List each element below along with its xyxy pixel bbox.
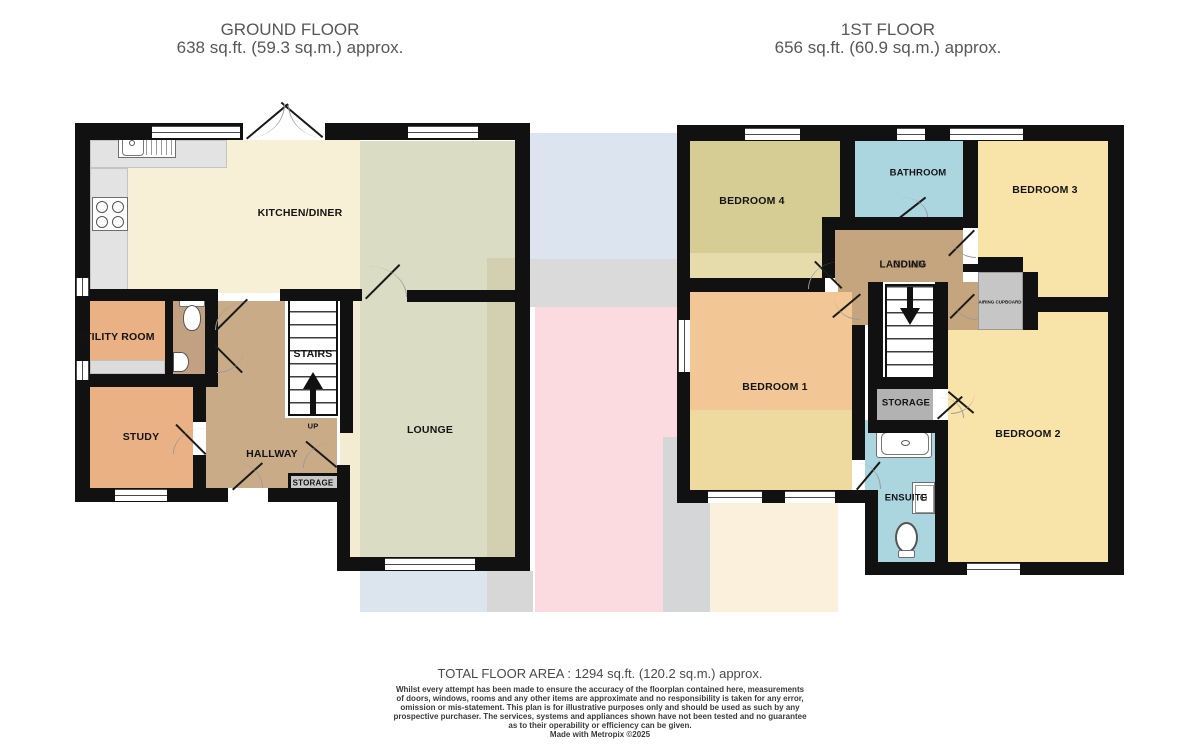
label-ground-storage: STORAGE — [293, 479, 334, 488]
label-first-storage: STORAGE — [882, 398, 930, 409]
window — [950, 128, 1023, 140]
bg-zone-cream — [710, 503, 838, 612]
wall — [193, 455, 206, 490]
stairs-down-arrow-icon — [907, 287, 913, 309]
bg-zone-blue — [527, 133, 677, 259]
label-utility-room: UTILITY ROOM — [77, 331, 154, 343]
window — [785, 491, 835, 503]
label-stairs: STAIRS — [294, 348, 333, 360]
ground-floor-title: GROUND FLOOR — [221, 20, 360, 40]
wall — [978, 257, 1023, 272]
label-ensuite: ENSUITE — [885, 493, 928, 504]
ensuite-toilet-icon — [895, 522, 918, 553]
kitchen-hob-icon — [92, 197, 128, 231]
wall — [868, 282, 883, 387]
bg-zone-pink — [535, 307, 677, 612]
first-floor-area: 656 sq.ft. (60.9 sq.m.) approx. — [775, 38, 1002, 58]
bedroom1-shade — [690, 410, 852, 490]
wall — [340, 289, 353, 433]
wall — [677, 125, 690, 490]
room-landing — [835, 230, 963, 282]
label-bedroom2: BEDROOM 2 — [995, 428, 1060, 440]
ground-floor-area: 638 sq.ft. (59.3 sq.m.) approx. — [177, 38, 404, 58]
label-hallway: HALLWAY — [246, 448, 298, 460]
window — [152, 126, 240, 138]
wall — [75, 289, 218, 301]
wall — [963, 141, 978, 228]
wall — [165, 289, 173, 380]
window — [76, 278, 89, 296]
wall — [677, 490, 870, 503]
wall — [677, 278, 825, 292]
wall — [963, 264, 978, 272]
wall — [337, 465, 350, 571]
window — [76, 361, 89, 380]
wall — [868, 377, 877, 433]
label-study: STUDY — [123, 431, 160, 443]
wall — [822, 217, 963, 230]
window — [708, 491, 762, 503]
wall — [1108, 125, 1124, 575]
window — [678, 320, 690, 372]
wall — [407, 290, 515, 302]
label-airing-cupboard: AIRING CUPBOARD — [978, 300, 1021, 305]
wall — [852, 325, 865, 460]
label-lounge: LOUNGE — [407, 424, 453, 436]
window — [745, 128, 800, 140]
window — [897, 128, 925, 140]
label-up: UP — [308, 422, 319, 431]
wall — [193, 387, 206, 422]
total-floor-area: TOTAL FLOOR AREA : 1294 sq.ft. (120.2 sq… — [438, 666, 763, 681]
first-floor-title: 1ST FLOOR — [841, 20, 935, 40]
utility-counter — [90, 360, 165, 374]
bg-zone-gray3 — [487, 571, 533, 612]
window — [385, 558, 475, 570]
wc-basin-icon — [173, 352, 189, 372]
credit-line: Made with Metropix ©2025 — [550, 730, 650, 739]
label-kitchen-diner: KITCHEN/DINER — [258, 207, 343, 219]
wall — [935, 420, 948, 562]
window — [115, 489, 167, 501]
stairs-down-arrowhead-icon — [900, 308, 920, 325]
bg-zone-gray — [527, 259, 677, 307]
lounge-shade-strip — [487, 258, 515, 558]
stairs-up-arrowhead-icon — [303, 372, 323, 389]
label-bedroom1: BEDROOM 1 — [742, 381, 807, 393]
floorplan-page: GROUND FLOOR 638 sq.ft. (59.3 sq.m.) app… — [0, 0, 1200, 744]
wall — [515, 123, 530, 571]
wall — [935, 282, 948, 389]
label-down-ghost: DOWN — [893, 260, 925, 271]
stairs-up-arrow-icon — [310, 388, 316, 414]
label-bedroom4: BEDROOM 4 — [719, 195, 784, 207]
bg-zone-blue2 — [360, 571, 487, 612]
front-door-opening — [228, 488, 268, 502]
wall — [75, 123, 90, 502]
window — [967, 563, 1020, 575]
wc-toilet-icon — [183, 305, 201, 331]
window — [408, 126, 478, 138]
wall — [75, 374, 218, 387]
ensuite-toilet-base — [898, 550, 915, 558]
label-bathroom: BATHROOM — [890, 168, 947, 179]
label-bedroom3: BEDROOM 3 — [1012, 184, 1077, 196]
wall — [1023, 297, 1108, 312]
